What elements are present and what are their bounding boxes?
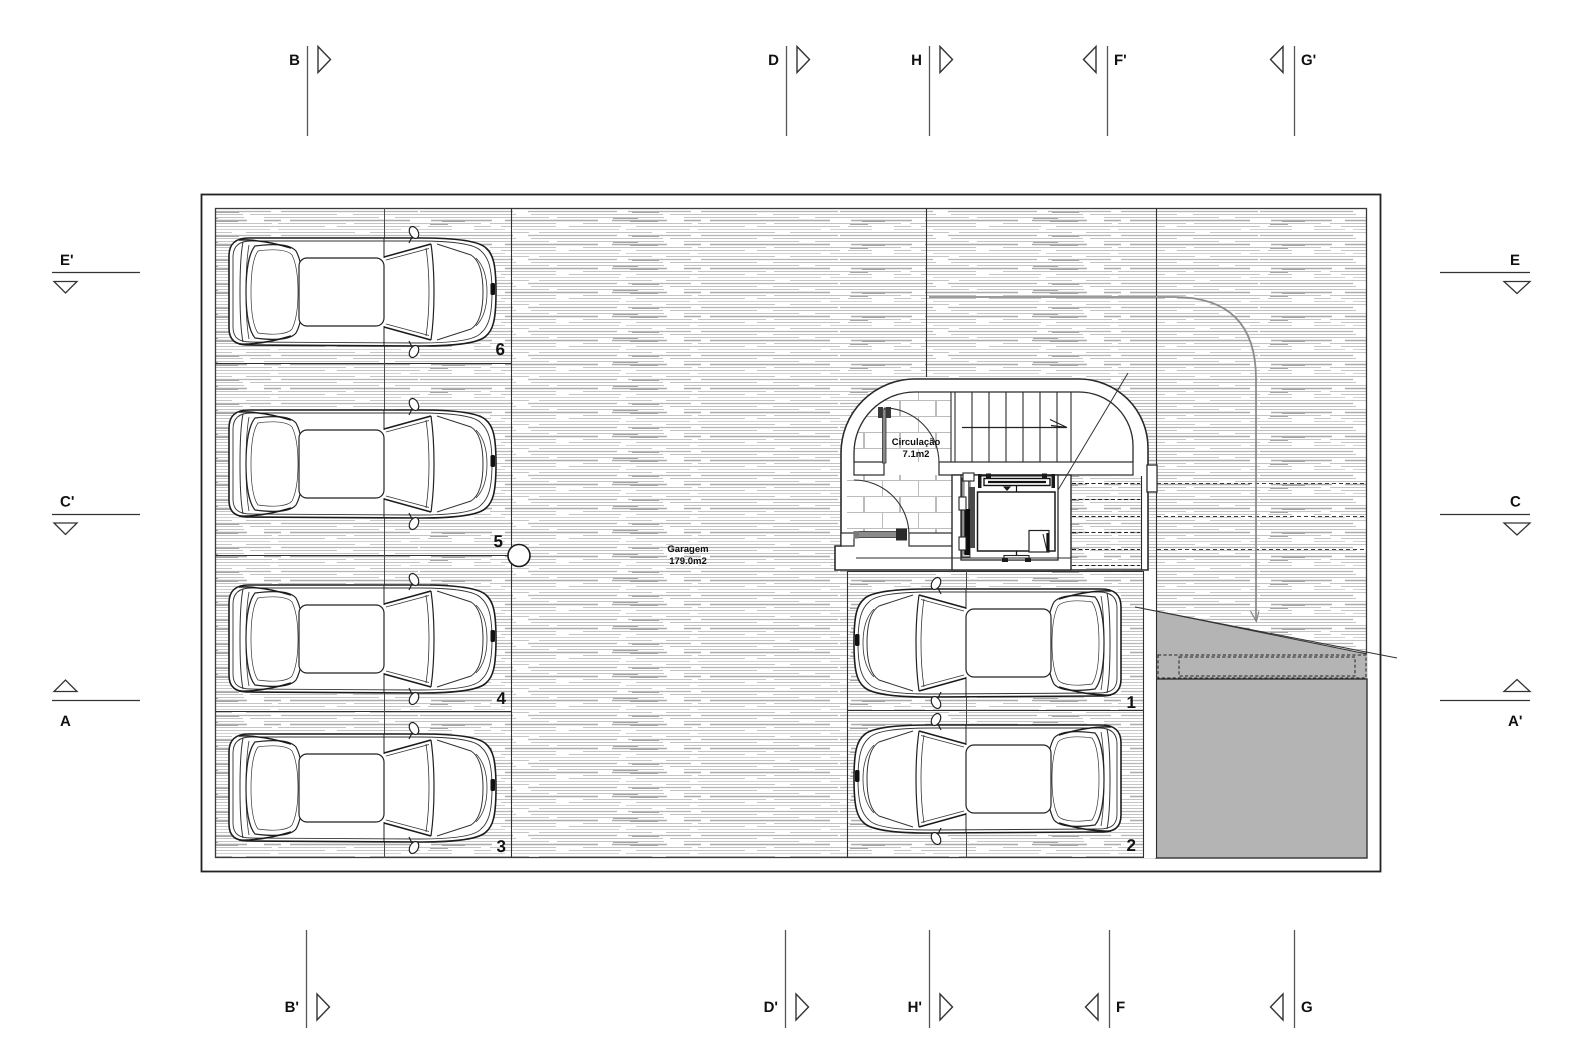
svg-text:B': B' [285,999,299,1016]
svg-text:G': G' [1301,52,1316,69]
svg-text:C: C [1510,494,1521,511]
svg-text:2: 2 [1127,836,1136,855]
svg-text:1: 1 [1127,693,1136,712]
svg-text:Garagem: Garagem [667,544,708,555]
svg-text:3: 3 [497,837,506,856]
svg-text:Circulação: Circulação [892,437,941,448]
svg-text:H': H' [908,999,922,1016]
svg-text:E: E [1510,252,1520,269]
svg-text:B: B [289,52,300,69]
svg-text:A: A [60,713,71,730]
svg-text:H: H [911,52,922,69]
svg-text:G: G [1301,999,1313,1016]
svg-text:D': D' [764,999,778,1016]
svg-text:7.1m2: 7.1m2 [903,449,930,460]
svg-text:5: 5 [494,532,503,551]
svg-text:4: 4 [497,689,507,708]
svg-text:A': A' [1508,713,1522,730]
svg-text:E': E' [60,252,74,269]
svg-text:F: F [1116,999,1125,1016]
svg-text:179.0m2: 179.0m2 [669,556,707,567]
svg-text:D: D [768,52,779,69]
svg-text:F': F' [1114,52,1127,69]
svg-text:C': C' [60,494,74,511]
svg-text:6: 6 [496,340,505,359]
